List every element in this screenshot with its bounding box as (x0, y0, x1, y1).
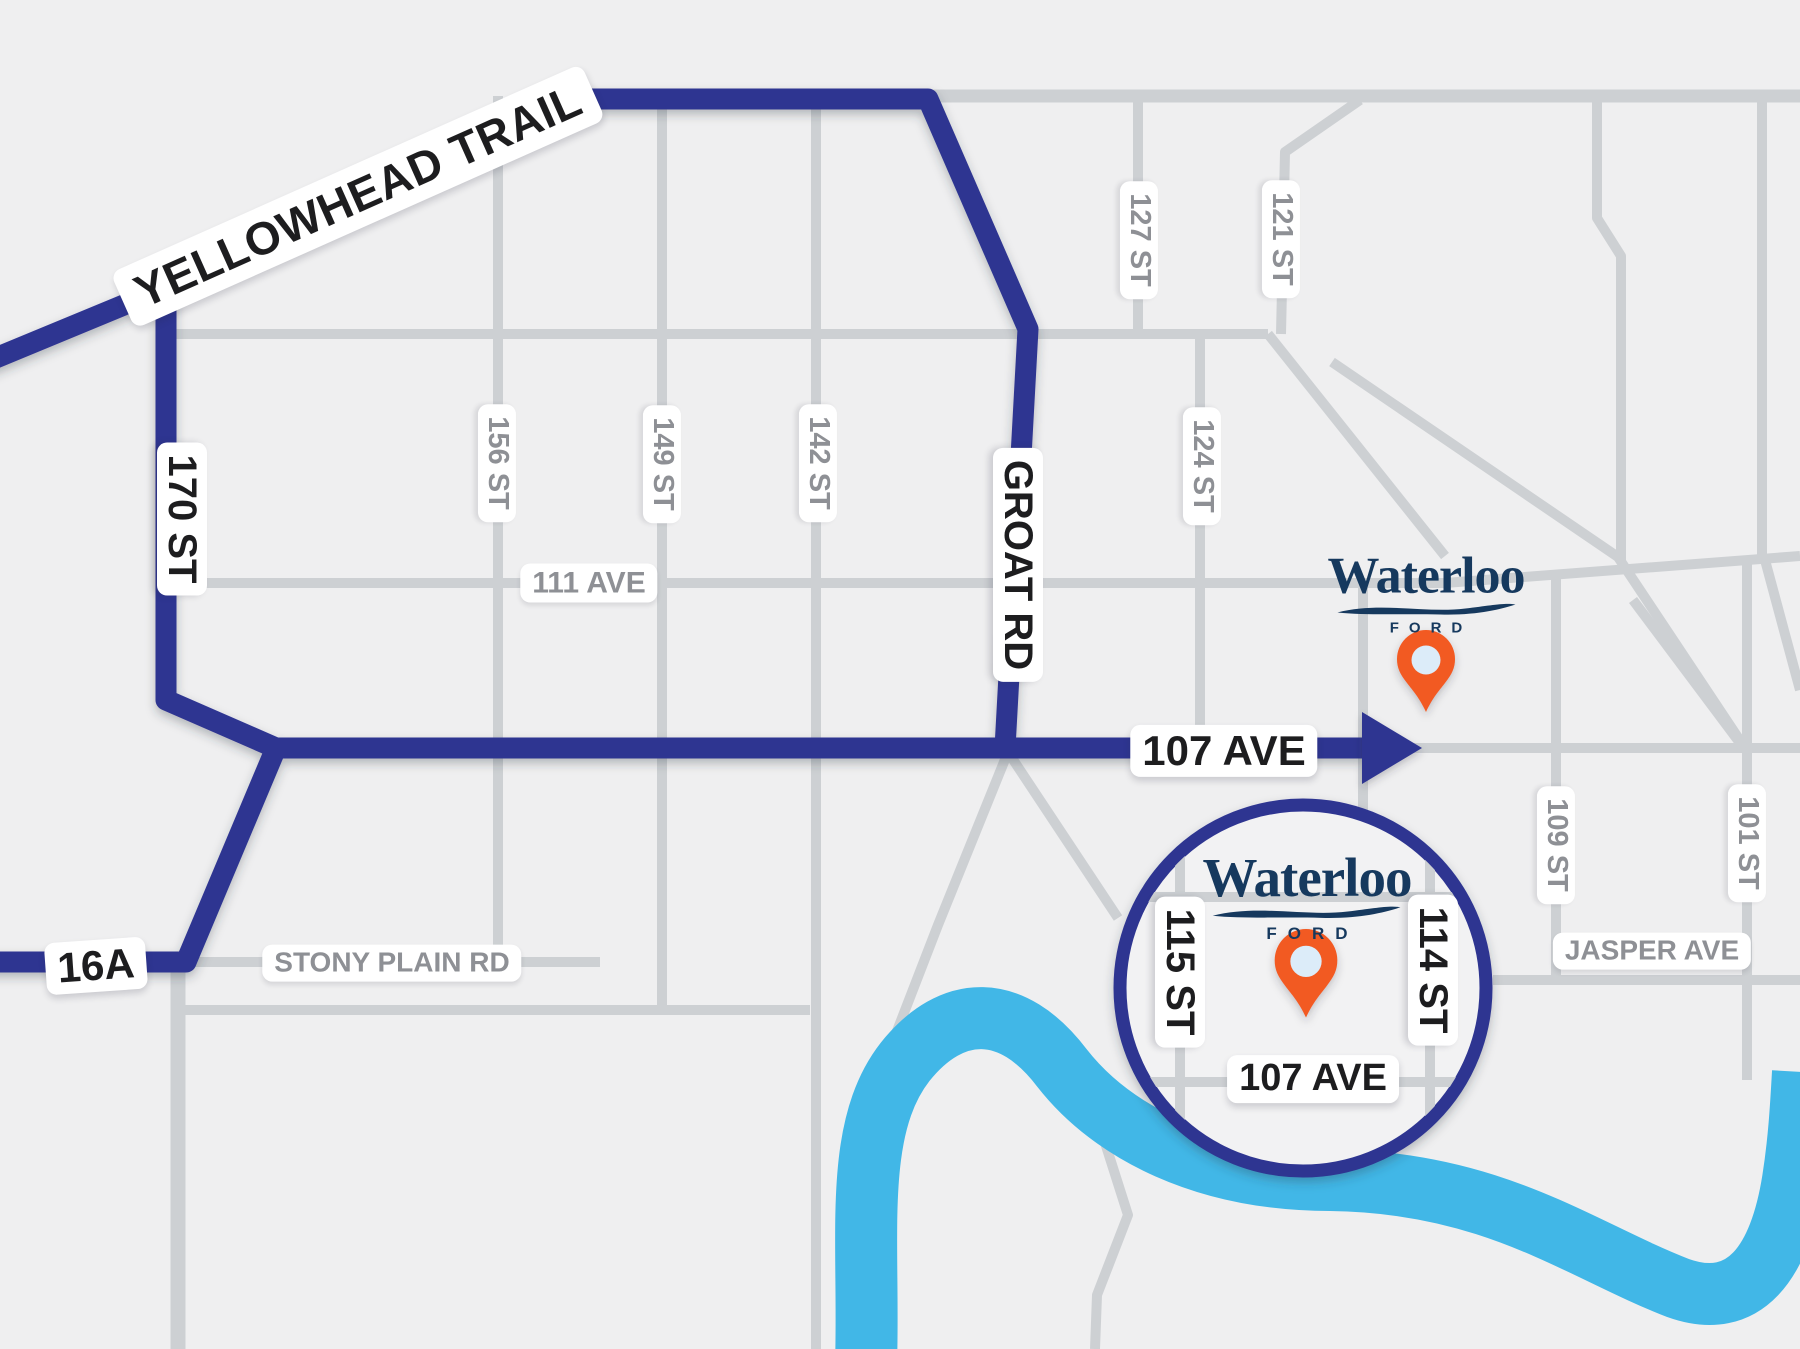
inset-label-107-ave: 107 AVE (1227, 1055, 1399, 1103)
label-156-st: 156 ST (478, 404, 516, 522)
label-jasper-ave: JASPER AVE (1553, 933, 1751, 970)
label-170-st: 170 ST (157, 443, 207, 596)
inset-label-114-st: 114 ST (1408, 895, 1458, 1046)
label-127-st: 127 ST (1120, 181, 1158, 299)
inset-label-115-st: 115 ST (1155, 897, 1205, 1048)
label-111-ave: 111 AVE (520, 564, 657, 603)
label-142-st: 142 ST (799, 404, 837, 522)
label-107-ave: 107 AVE (1130, 725, 1317, 777)
label-121-st: 121 ST (1262, 180, 1300, 298)
label-109-st: 109 ST (1537, 786, 1575, 904)
label-101-st: 101 ST (1728, 784, 1766, 902)
label-groat-rd: GROAT RD (993, 448, 1043, 682)
map-canvas: YELLOWHEAD TRAIL 170 ST GROAT RD 107 AVE… (0, 0, 1800, 1349)
label-124-st: 124 ST (1183, 407, 1221, 525)
label-stony-plain-rd: STONY PLAIN RD (262, 945, 521, 982)
label-16a: 16A (44, 936, 148, 995)
label-149-st: 149 ST (643, 405, 681, 523)
